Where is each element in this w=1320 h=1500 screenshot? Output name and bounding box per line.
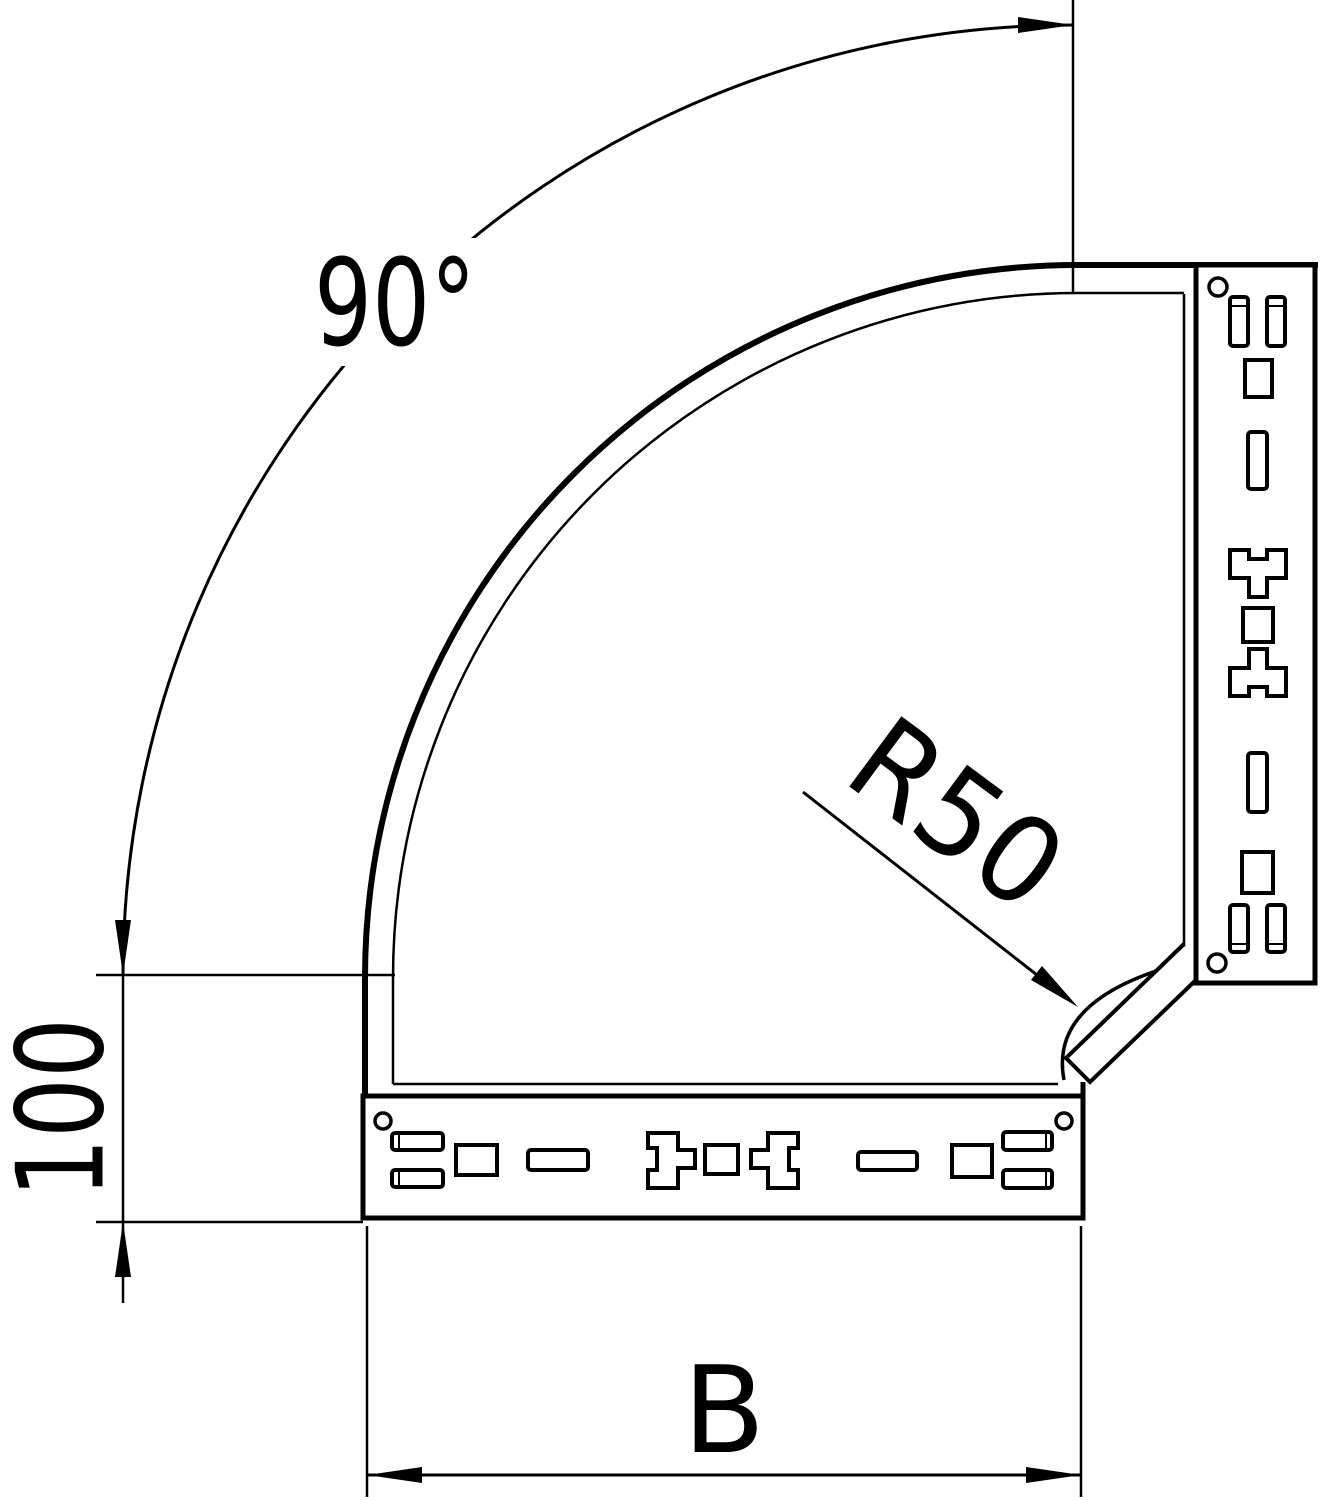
straight-length-label: 100 xyxy=(0,1018,132,1198)
arrowhead-up-icon xyxy=(115,1222,131,1277)
angle-arrowhead-right-icon xyxy=(1018,17,1073,33)
straight-length-dimension: 100 xyxy=(0,975,395,1303)
inner-corner xyxy=(1062,944,1197,1100)
perforation-square xyxy=(1245,360,1272,397)
perforation-square xyxy=(1242,852,1273,893)
perforation-slot xyxy=(1267,297,1285,346)
mounting-hole xyxy=(1208,954,1226,972)
mounting-hole xyxy=(1056,1113,1072,1129)
perforation-slot xyxy=(1248,753,1267,812)
angle-arrowhead-down-icon xyxy=(115,920,131,975)
bottom-connector-rail xyxy=(363,1096,1083,1218)
perforation-square xyxy=(952,1145,992,1177)
perforation-slot xyxy=(528,1150,588,1170)
mounting-hole xyxy=(375,1113,391,1129)
cable-tray-90-degree-bend-drawing: 90° 100 B xyxy=(0,0,1320,1500)
perforation-slot xyxy=(1003,1170,1052,1188)
width-dimension: B xyxy=(367,1226,1081,1497)
radius-dimension: R50 xyxy=(803,691,1089,1007)
width-label: B xyxy=(683,1342,765,1481)
arrowhead-right-icon xyxy=(1026,1467,1081,1483)
bend-body xyxy=(365,265,1318,1218)
radius-arrowhead-icon xyxy=(1031,966,1078,1007)
perforation-slot xyxy=(1230,297,1248,346)
angle-label: 90° xyxy=(314,235,476,374)
inner-wall-line xyxy=(393,293,1184,1084)
perforation-slot xyxy=(1003,1132,1052,1150)
perforation-square xyxy=(456,1145,497,1175)
perforation-slot xyxy=(858,1152,917,1170)
mounting-hole xyxy=(1209,278,1227,296)
perforation-square xyxy=(1243,608,1273,642)
outer-contour xyxy=(365,265,1318,1218)
chamfer-plate-fill xyxy=(1066,944,1197,1082)
right-connector-rail xyxy=(1196,265,1315,983)
arrowhead-left-icon xyxy=(367,1467,422,1483)
radius-label: R50 xyxy=(823,691,1089,938)
technical-drawing-canvas: 90° 100 B xyxy=(0,0,1320,1500)
perforation-slot xyxy=(1248,432,1267,489)
perforation-square xyxy=(705,1145,738,1174)
